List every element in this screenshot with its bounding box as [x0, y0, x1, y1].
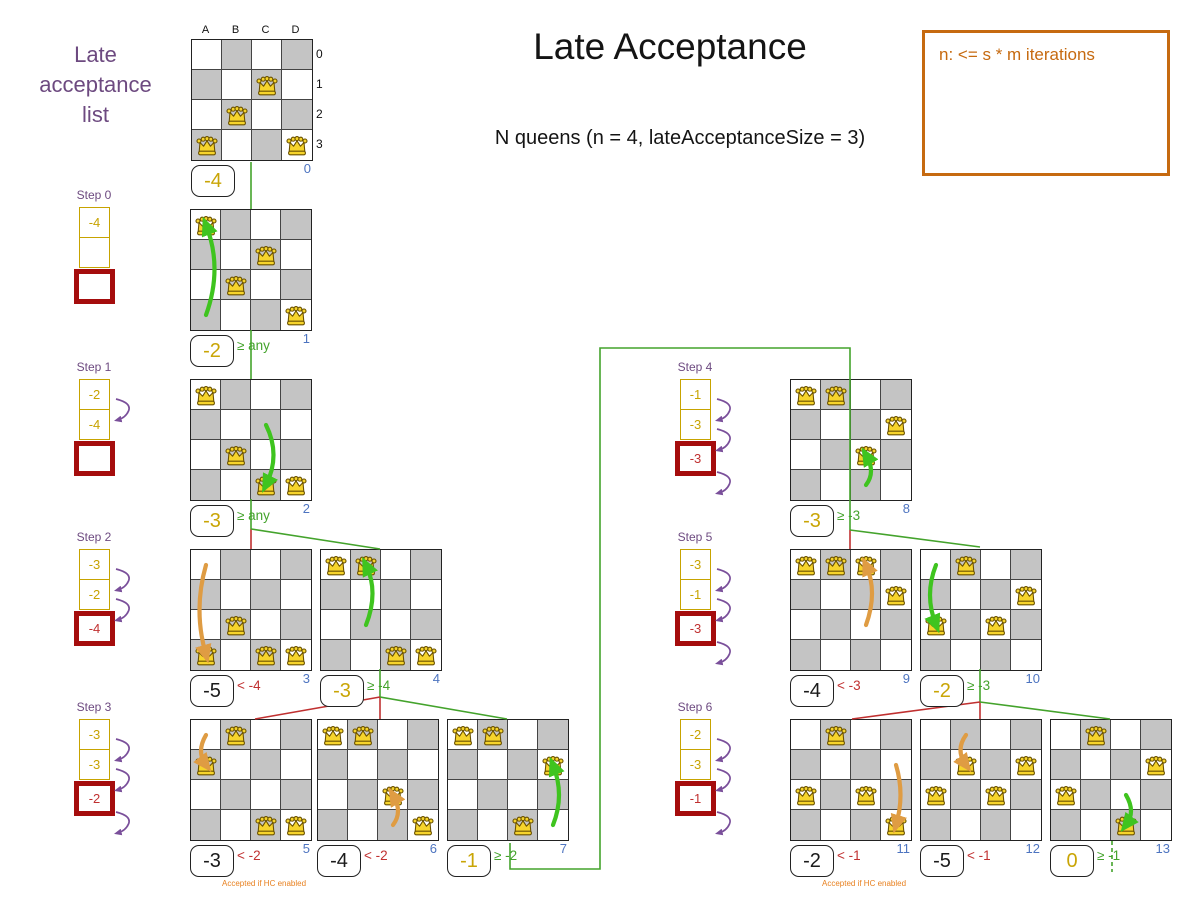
board-overlay: [1051, 720, 1171, 840]
score-badge: -3: [190, 845, 234, 877]
score-badge: -4: [191, 165, 235, 197]
board-iteration-0: [191, 39, 313, 161]
queen-icon: [287, 137, 307, 155]
shift-arrow-icon: [112, 566, 134, 594]
acceptance-gate-label: < -3: [837, 678, 861, 693]
late-list-box: -3: [79, 719, 110, 750]
queen-icon: [386, 647, 406, 665]
late-list-tail-box: [74, 441, 115, 476]
queen-icon: [226, 727, 246, 745]
acceptance-gate-label: ≥ -1: [1097, 848, 1120, 863]
acceptance-gate-label: ≥ -4: [367, 678, 390, 693]
late-list-tail-box: -1: [675, 781, 716, 816]
board-overlay: [321, 550, 441, 670]
board-iteration-6: [317, 719, 439, 841]
queen-icon: [226, 277, 246, 295]
late-acceptance-diagram: Late acceptance list Late Acceptance N q…: [0, 0, 1200, 900]
queen-icon: [226, 617, 246, 635]
board-iteration-7: [447, 719, 569, 841]
queen-icon: [257, 77, 277, 95]
move-arrow-icon: [961, 735, 967, 765]
late-list-tail-box: -2: [74, 781, 115, 816]
column-header: A: [191, 24, 221, 36]
queen-icon: [796, 557, 816, 575]
late-list-box: -3: [680, 409, 711, 440]
move-arrow-icon: [201, 735, 206, 765]
queen-icon: [453, 727, 473, 745]
board-iteration-10: [920, 549, 1042, 671]
queen-icon: [256, 247, 276, 265]
late-list-box: -2: [79, 579, 110, 610]
board-iteration-3: [190, 549, 312, 671]
late-list-box: -2: [79, 379, 110, 410]
queen-icon: [796, 387, 816, 405]
tree-connector-green: [380, 697, 507, 719]
step-label: Step 1: [44, 360, 144, 374]
tree-connector-green: [251, 529, 380, 549]
late-list-tail-box: -4: [74, 611, 115, 646]
score-badge: -5: [920, 845, 964, 877]
shift-arrow-icon: [112, 766, 134, 794]
board-iteration-2: [190, 379, 312, 501]
shift-arrow-icon: [112, 396, 134, 424]
step-label: Step 4: [645, 360, 745, 374]
late-acceptance-list-label: Late acceptance list: [18, 40, 173, 130]
queen-icon: [413, 817, 433, 835]
score-badge: -4: [790, 675, 834, 707]
iteration-index: 6: [413, 841, 437, 856]
step-label: Step 2: [44, 530, 144, 544]
board-overlay: [191, 380, 311, 500]
board-iteration-1: [190, 209, 312, 331]
iteration-index: 7: [543, 841, 567, 856]
score-badge: -5: [190, 675, 234, 707]
score-badge: -1: [447, 845, 491, 877]
late-list-box: -4: [79, 409, 110, 440]
queen-icon: [483, 727, 503, 745]
late-list-box: -3: [680, 549, 711, 580]
row-header: 1: [316, 77, 323, 91]
board-overlay: [448, 720, 568, 840]
queen-icon: [986, 617, 1006, 635]
late-acceptance-list-label-line1: Late: [18, 40, 173, 70]
board-iteration-8: [790, 379, 912, 501]
board-overlay: [921, 550, 1041, 670]
row-header: 0: [316, 47, 323, 61]
queen-icon: [353, 727, 373, 745]
shift-arrow-icon: [713, 469, 735, 497]
board-iteration-13: [1050, 719, 1172, 841]
shift-arrow-icon: [713, 736, 735, 764]
iteration-index: 0: [287, 161, 311, 176]
queen-icon: [856, 787, 876, 805]
board-overlay: [191, 720, 311, 840]
queen-icon: [256, 647, 276, 665]
queen-icon: [956, 557, 976, 575]
move-arrow-icon: [930, 565, 936, 625]
score-badge: -3: [190, 505, 234, 537]
iteration-index: 3: [286, 671, 310, 686]
step-label: Step 6: [645, 700, 745, 714]
late-list-tail-box: [74, 269, 115, 304]
acceptance-gate-label: < -4: [237, 678, 261, 693]
shift-arrow-icon: [713, 426, 735, 454]
late-list-box: [79, 237, 110, 268]
score-badge: -2: [190, 335, 234, 367]
queen-icon: [286, 647, 306, 665]
queen-icon: [226, 447, 246, 465]
shift-arrow-icon: [713, 566, 735, 594]
acceptance-gate-label: ≥ any: [237, 338, 270, 353]
acceptance-gate-label: < -1: [967, 848, 991, 863]
queen-icon: [1146, 757, 1166, 775]
column-header: D: [281, 24, 311, 36]
late-list-tail-box: -3: [675, 441, 716, 476]
page-title: Late Acceptance: [440, 26, 900, 68]
iterations-note-box: n: <= s * m iterations: [922, 30, 1170, 176]
score-badge: 0: [1050, 845, 1094, 877]
queen-icon: [1056, 787, 1076, 805]
late-list-box: -3: [680, 749, 711, 780]
iterations-note-text: n: <= s * m iterations: [925, 33, 1167, 65]
shift-arrow-icon: [112, 809, 134, 837]
column-header: C: [251, 24, 281, 36]
iteration-index: 9: [886, 671, 910, 686]
acceptance-gate-label: ≥ -3: [967, 678, 990, 693]
hc-note: Accepted if HC enabled: [222, 879, 306, 888]
iteration-index: 12: [1016, 841, 1040, 856]
iteration-index: 11: [886, 841, 910, 856]
score-badge: -2: [920, 675, 964, 707]
queen-icon: [227, 107, 247, 125]
queen-icon: [416, 647, 436, 665]
late-list-box: -4: [79, 207, 110, 238]
queen-icon: [826, 727, 846, 745]
late-list-box: -3: [79, 749, 110, 780]
queen-icon: [196, 387, 216, 405]
board-overlay: [191, 210, 311, 330]
move-arrow-icon: [866, 455, 871, 485]
queen-icon: [256, 817, 276, 835]
queen-icon: [286, 477, 306, 495]
move-arrow-icon: [266, 425, 274, 485]
board-overlay: [791, 720, 911, 840]
late-acceptance-list-label-line2: acceptance: [18, 70, 173, 100]
score-badge: -2: [790, 845, 834, 877]
queen-icon: [197, 137, 217, 155]
score-badge: -4: [317, 845, 361, 877]
step-label: Step 5: [645, 530, 745, 544]
score-badge: -3: [790, 505, 834, 537]
page-subtitle: N queens (n = 4, lateAcceptanceSize = 3): [420, 127, 940, 150]
acceptance-gate-label: < -2: [237, 848, 261, 863]
tree-connector-green: [980, 702, 1110, 719]
queen-icon: [886, 587, 906, 605]
acceptance-gate-label: ≥ -3: [837, 508, 860, 523]
step-label: Step 3: [44, 700, 144, 714]
acceptance-gate-label: ≥ any: [237, 508, 270, 523]
late-acceptance-list-label-line3: list: [18, 100, 173, 130]
board-overlay: [791, 550, 911, 670]
shift-arrow-icon: [112, 736, 134, 764]
board-iteration-11: [790, 719, 912, 841]
board-overlay: [921, 720, 1041, 840]
move-arrow-icon: [1126, 795, 1131, 825]
queen-icon: [513, 817, 533, 835]
queen-icon: [286, 817, 306, 835]
acceptance-gate-label: ≥ -2: [494, 848, 517, 863]
acceptance-gate-label: < -1: [837, 848, 861, 863]
row-header: 3: [316, 137, 323, 151]
board-iteration-5: [190, 719, 312, 841]
iteration-index: 1: [286, 331, 310, 346]
shift-arrow-icon: [112, 596, 134, 624]
board-overlay: [318, 720, 438, 840]
iteration-index: 5: [286, 841, 310, 856]
board-iteration-4: [320, 549, 442, 671]
late-list-box: -1: [680, 579, 711, 610]
acceptance-gate-label: < -2: [364, 848, 388, 863]
late-list-box: -1: [680, 379, 711, 410]
tree-connector-green: [850, 530, 980, 547]
iteration-index: 2: [286, 501, 310, 516]
queen-icon: [826, 557, 846, 575]
shift-arrow-icon: [713, 639, 735, 667]
column-header: B: [221, 24, 251, 36]
board-iteration-12: [920, 719, 1042, 841]
queen-icon: [796, 787, 816, 805]
queen-icon: [326, 557, 346, 575]
move-arrow-icon: [553, 765, 559, 825]
move-arrow-icon: [200, 565, 207, 655]
queen-icon: [826, 387, 846, 405]
iteration-index: 13: [1146, 841, 1170, 856]
queen-icon: [986, 787, 1006, 805]
board-overlay: [192, 40, 312, 160]
move-arrow-icon: [393, 795, 398, 825]
board-overlay: [191, 550, 311, 670]
late-list-box: -3: [79, 549, 110, 580]
score-badge: -3: [320, 675, 364, 707]
row-header: 2: [316, 107, 323, 121]
shift-arrow-icon: [713, 766, 735, 794]
shift-arrow-icon: [713, 809, 735, 837]
step-label: Step 0: [44, 188, 144, 202]
board-overlay: [791, 380, 911, 500]
iteration-index: 8: [886, 501, 910, 516]
queen-icon: [1016, 587, 1036, 605]
queen-icon: [1016, 757, 1036, 775]
queen-icon: [286, 307, 306, 325]
move-arrow-icon: [206, 225, 215, 315]
late-list-box: -2: [680, 719, 711, 750]
shift-arrow-icon: [713, 396, 735, 424]
move-arrow-icon: [896, 765, 901, 825]
queen-icon: [926, 787, 946, 805]
iteration-index: 4: [416, 671, 440, 686]
queen-icon: [886, 417, 906, 435]
queen-icon: [323, 727, 343, 745]
queen-icon: [1086, 727, 1106, 745]
late-list-tail-box: -3: [675, 611, 716, 646]
shift-arrow-icon: [713, 596, 735, 624]
hc-note: Accepted if HC enabled: [822, 879, 906, 888]
board-iteration-9: [790, 549, 912, 671]
iteration-index: 10: [1016, 671, 1040, 686]
